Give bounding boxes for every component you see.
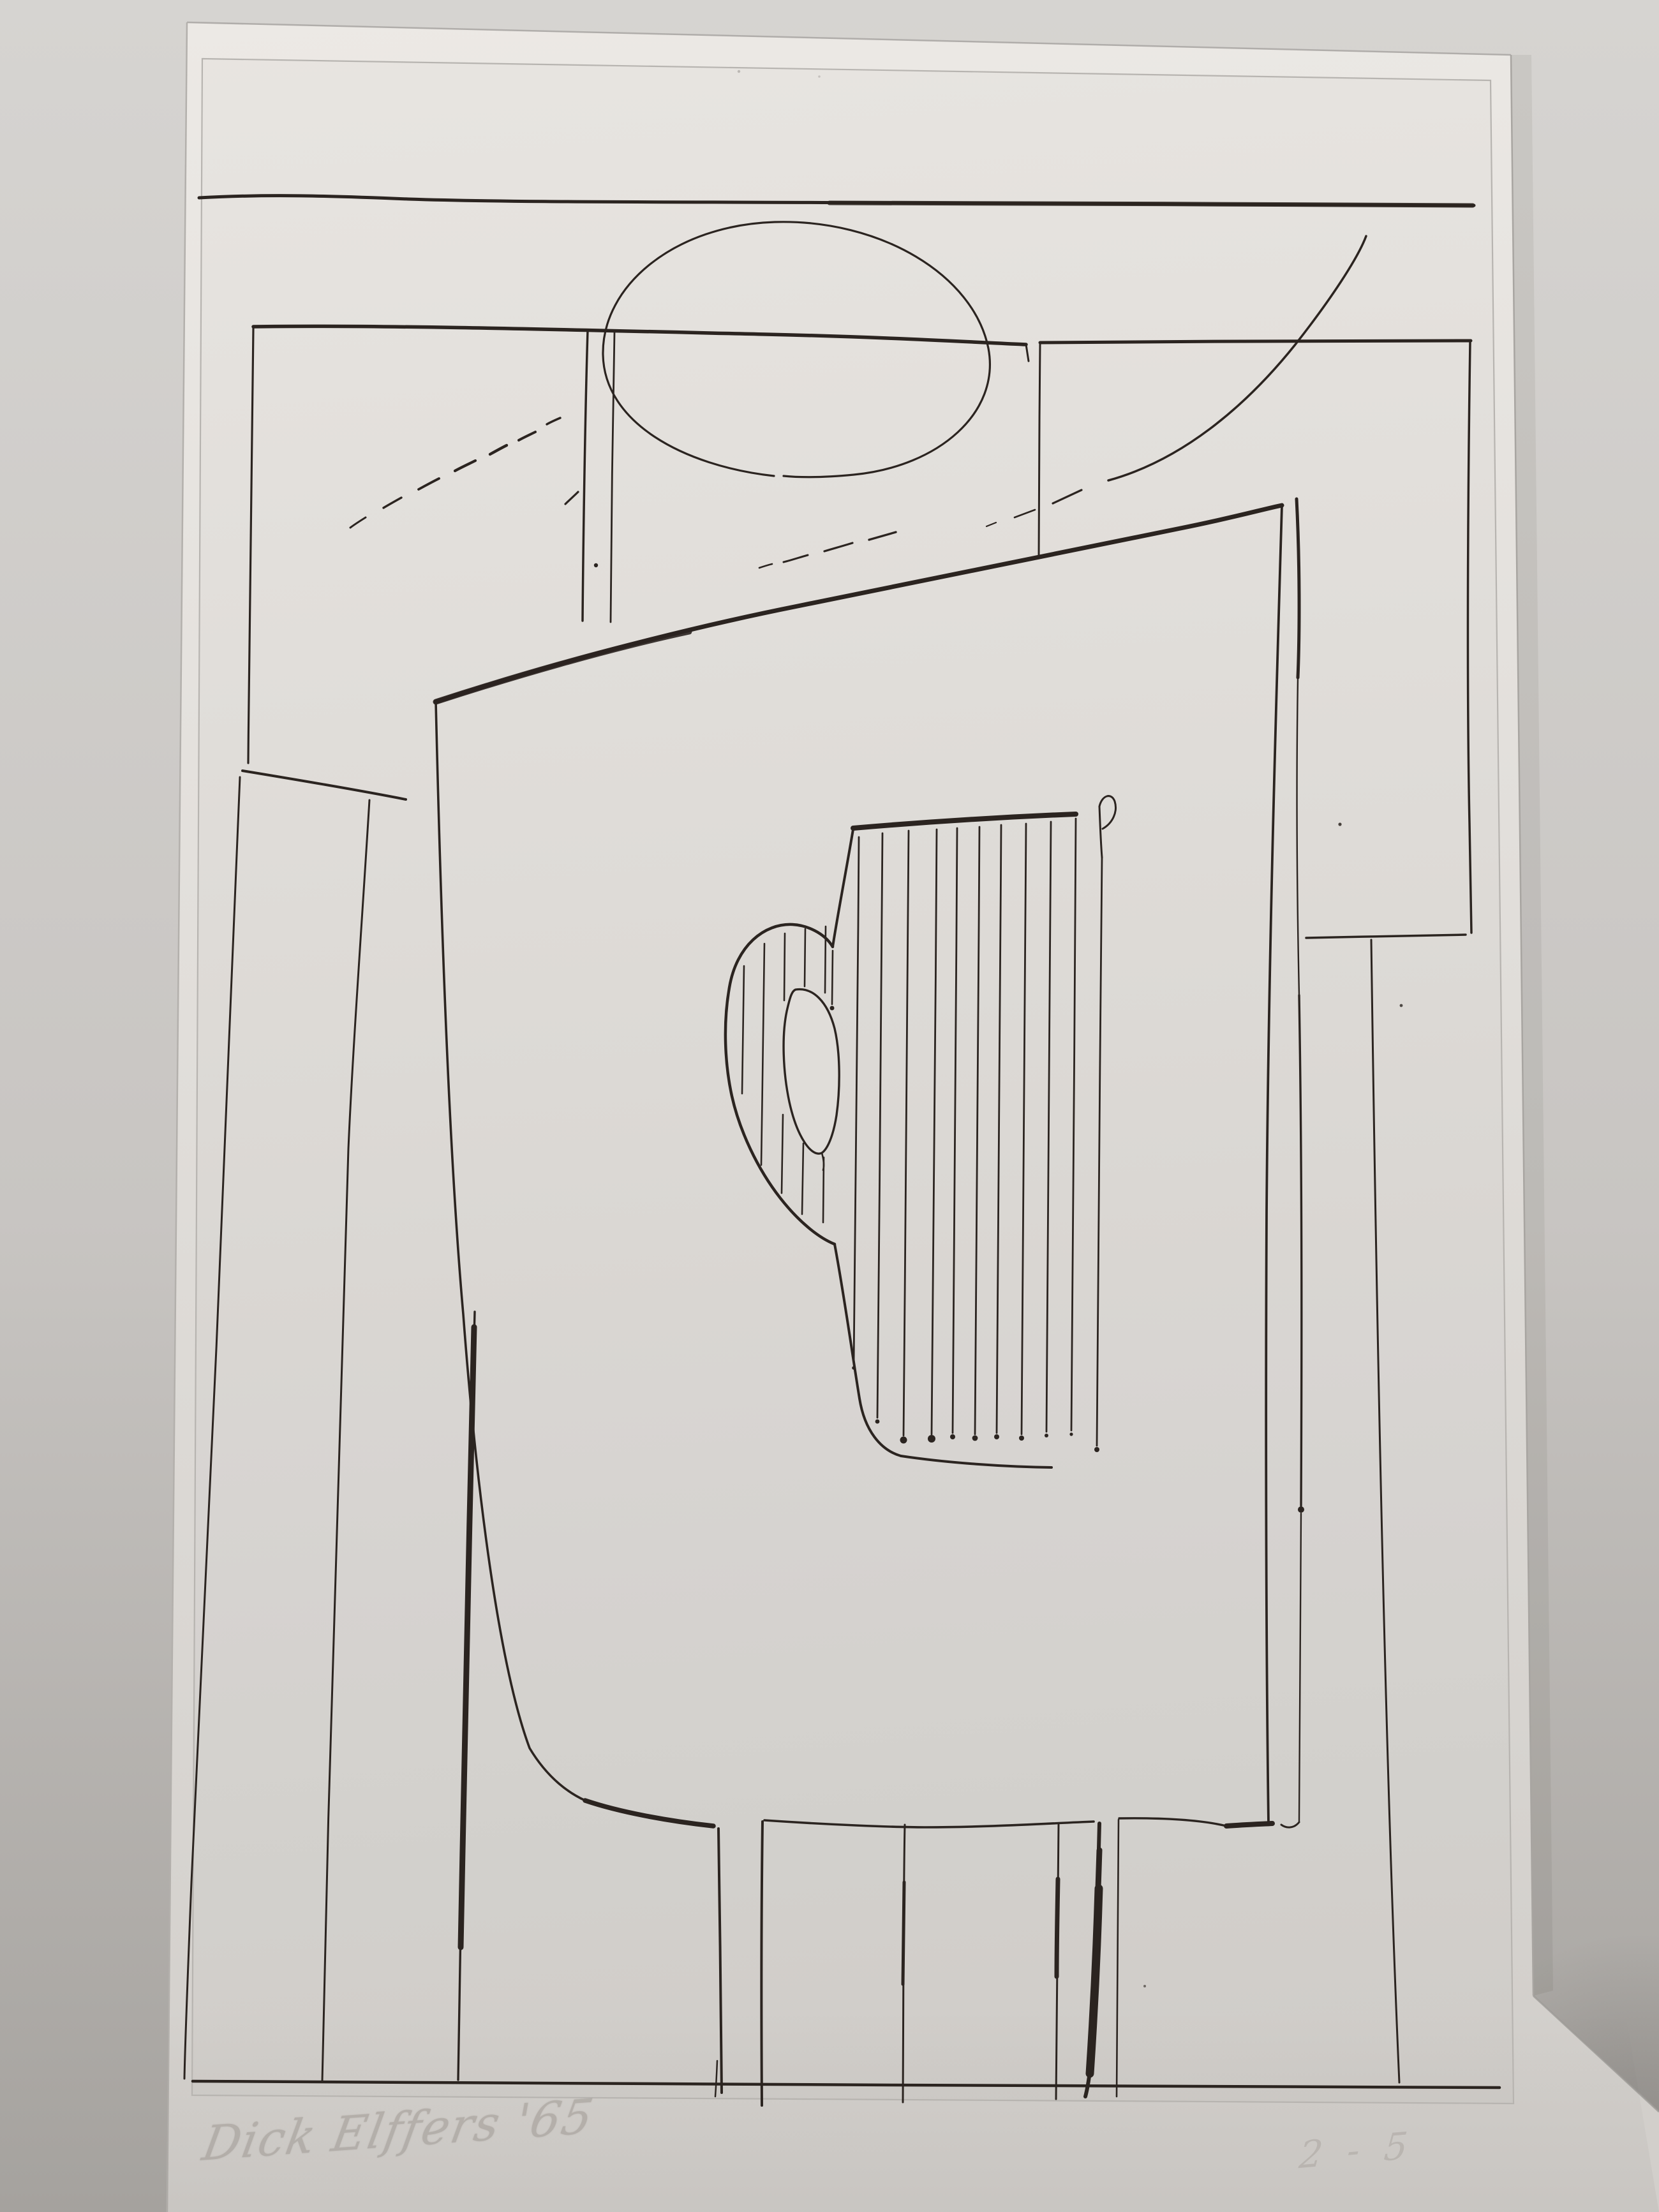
- etching-photo-canvas: [0, 0, 1659, 2212]
- stripe-dot: [994, 1434, 999, 1439]
- ink-fleck: [594, 563, 598, 567]
- hatch-stripe: [823, 1157, 824, 1222]
- stripe-dot: [1045, 1434, 1048, 1437]
- ink-fleck: [1338, 822, 1341, 826]
- table-top-thick-end: [1226, 1823, 1272, 1826]
- top-rule-heavy-part: [829, 203, 1473, 205]
- stripe-dot: [950, 1434, 955, 1439]
- ink-fleck: [1143, 1985, 1146, 1987]
- table-leg-heavy-overlay: [1096, 1850, 1099, 1946]
- hatch-stripe: [825, 926, 826, 993]
- ink-blob: [1298, 1506, 1304, 1513]
- stripe-dot: [928, 1435, 935, 1443]
- stripe-dot: [900, 1437, 907, 1444]
- table-leg: [761, 1822, 763, 2105]
- stripe-dot: [852, 1366, 856, 1370]
- hatch-stripe: [832, 951, 833, 1004]
- ink-fleck: [1400, 1004, 1403, 1007]
- stripe-dot: [830, 1006, 835, 1011]
- panels-top-line-right: [1040, 341, 1471, 343]
- hatch-stripe: [784, 933, 785, 1000]
- stripe-dot: [875, 1420, 880, 1424]
- stripe-dot: [1019, 1436, 1024, 1441]
- table-leg-thickening: [903, 1882, 904, 1984]
- stripe-dot: [1094, 1447, 1099, 1452]
- stripe-dot: [972, 1436, 978, 1441]
- hatch-stripe: [805, 929, 805, 986]
- right-panel-left-edge: [1039, 344, 1040, 556]
- table-leg-thickening: [1057, 1879, 1058, 1977]
- stripe-dot: [1069, 1432, 1073, 1436]
- plate-mark: [192, 59, 1514, 2104]
- photo-of-etching: Dick Elffers '65 2 - 5: [0, 0, 1659, 2212]
